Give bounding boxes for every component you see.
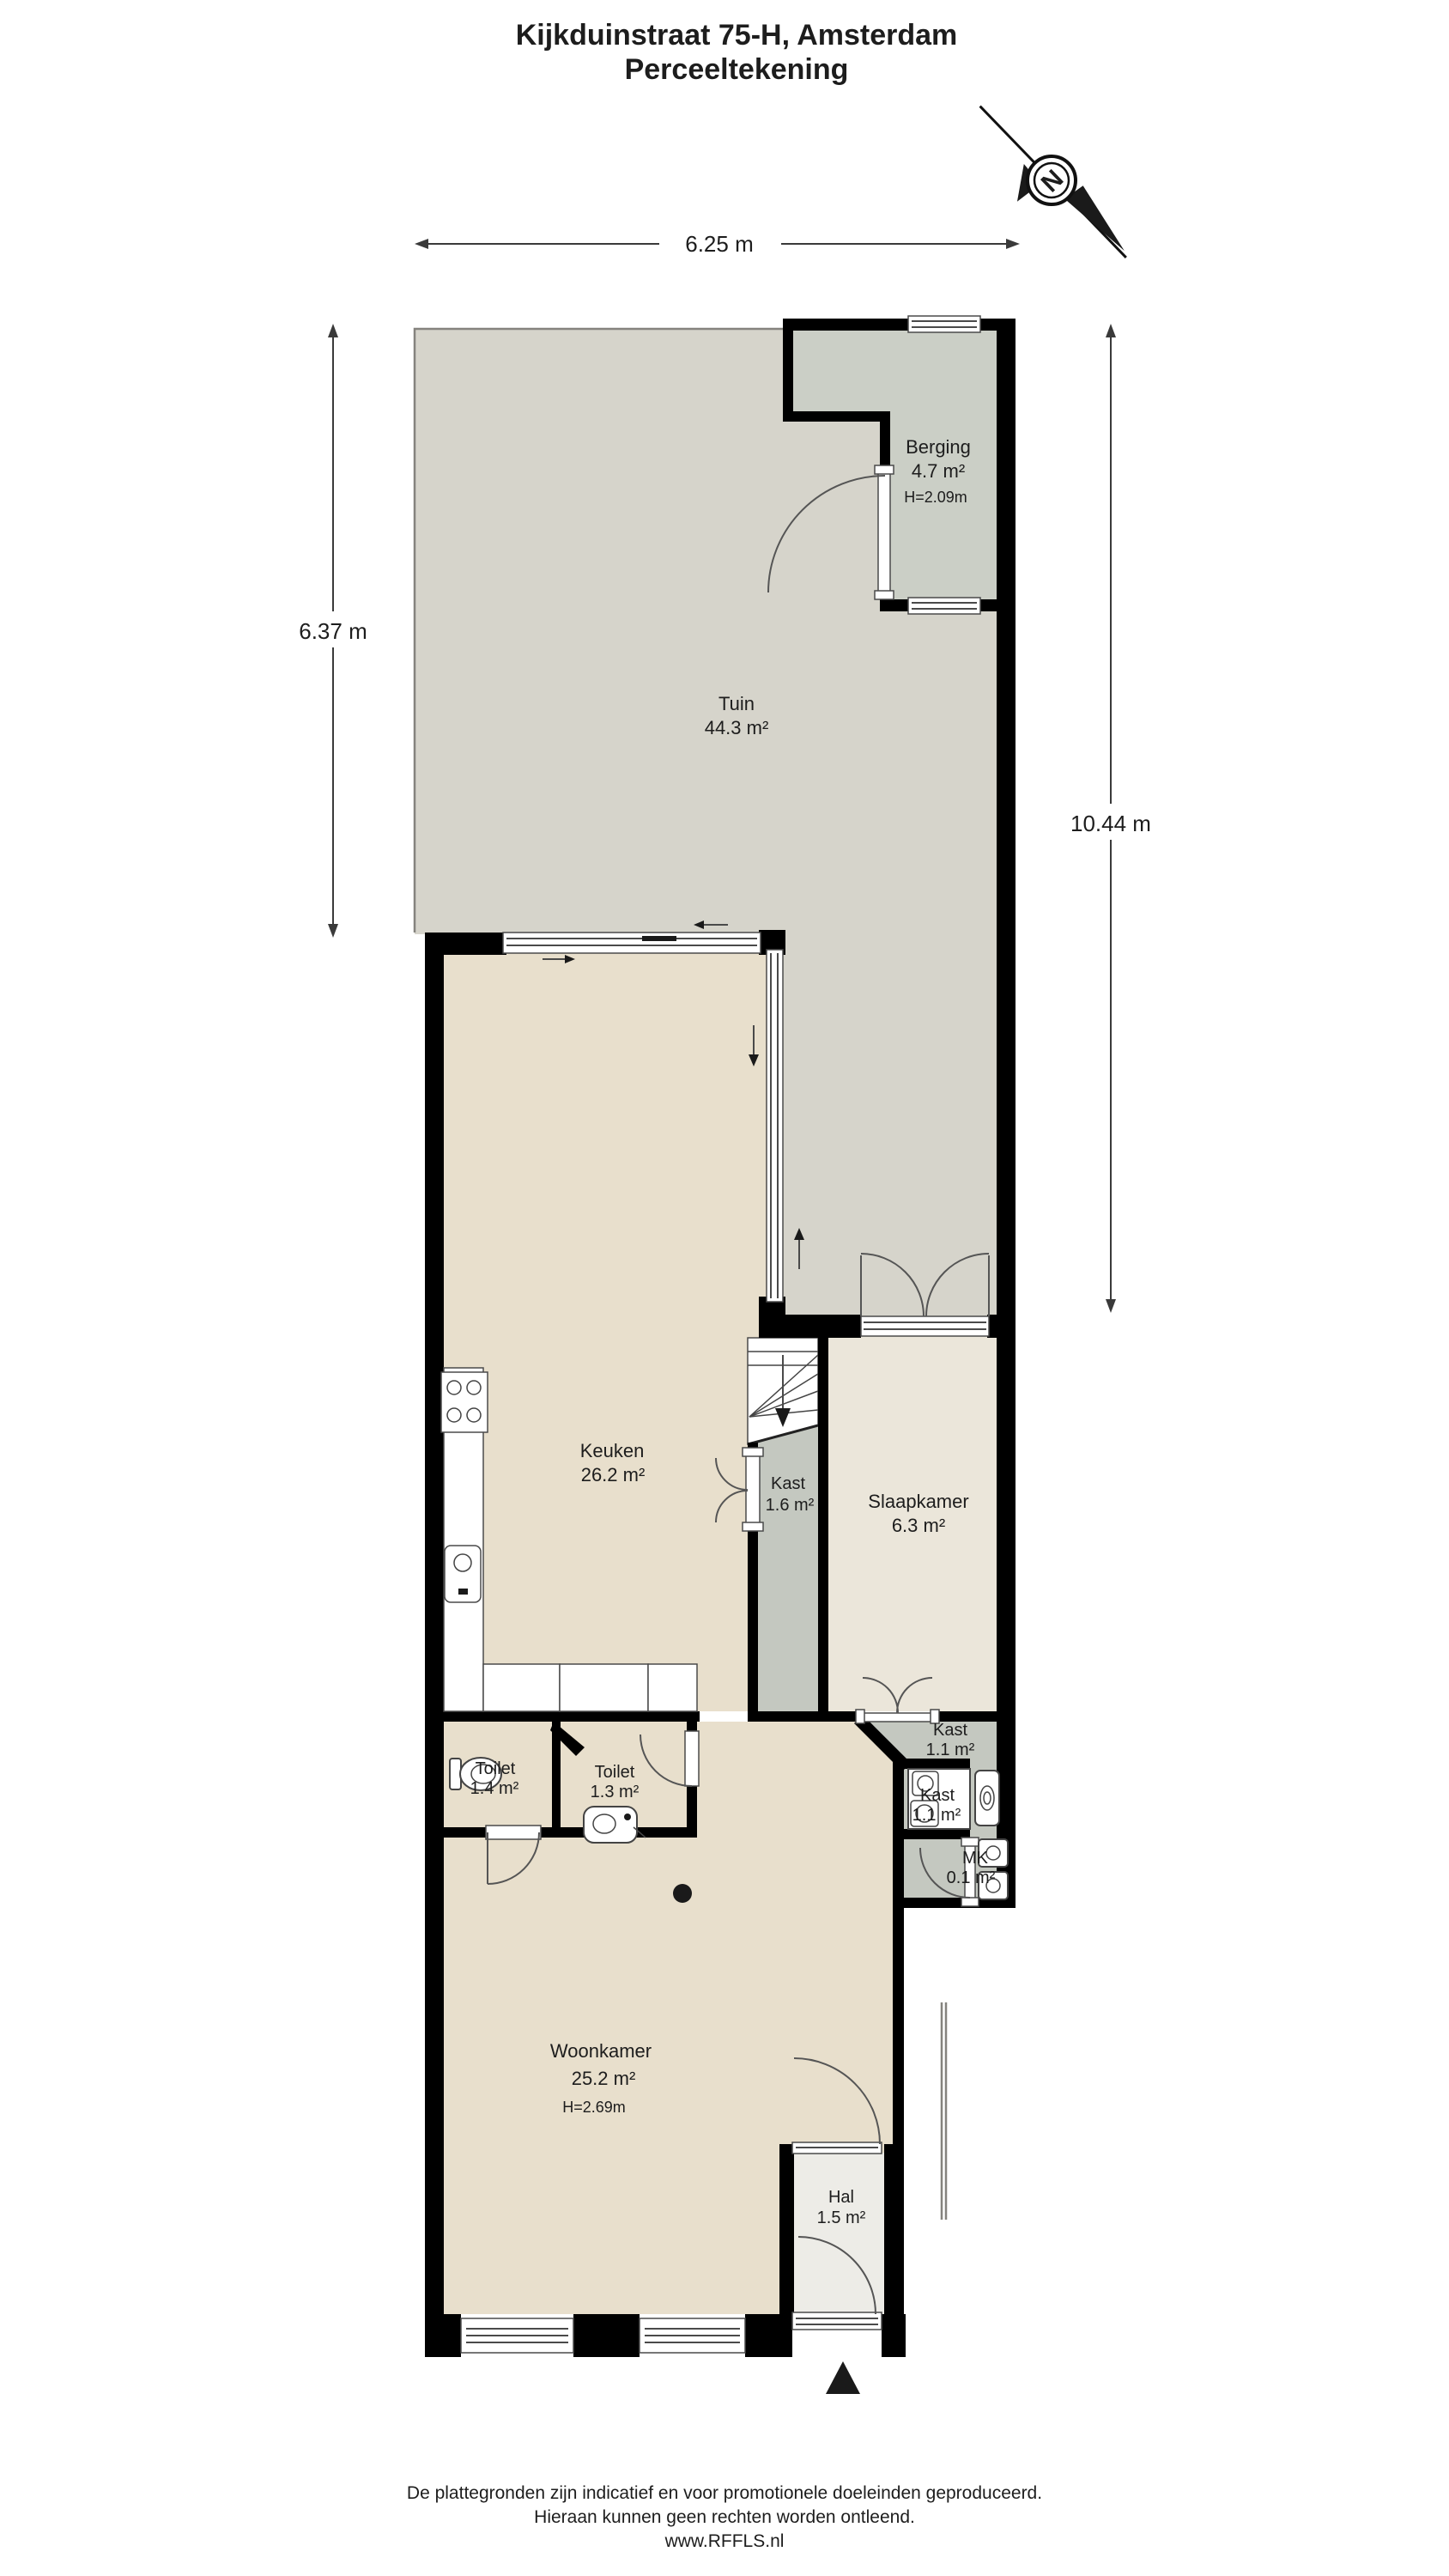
toilet-1-name-label: Toilet [476,1759,516,1778]
room-kast-trap-floor [758,1420,818,1711]
berging-name-label: Berging [906,436,971,458]
compass-north-icon: N [952,89,1143,285]
title-line-2: Perceeltekening [625,53,849,86]
room-toilet-2: Toilet 1.3 m² [591,1763,640,1801]
room-keuken-floor [444,951,768,1711]
boiler-icon [975,1771,999,1826]
staircase [748,1338,818,1444]
column-icon [673,1884,692,1903]
kast-trap-area-label: 1.6 m² [766,1496,815,1515]
footer-line-1: De plattegronden zijn indicatief en voor… [407,2483,1042,2503]
sink-icon [445,1546,481,1602]
kast-slaapkamer-area-label: 1.1 m² [926,1741,975,1759]
berging-ceiling-label: H=2.09m [904,489,967,506]
woonkamer-window-right-icon [640,2318,745,2353]
tuin-name-label: Tuin [718,693,755,714]
toilet-1-area-label: 1.4 m² [470,1779,519,1798]
berging-window-top-icon [908,316,980,332]
room-hal-floor [794,2153,884,2314]
meterkast-area-label: 0.1 m² [947,1868,996,1887]
dimension-top-label: 6.25 m [685,231,754,257]
floorplan-svg: Kijkduinstraat 75-H, Amsterdam Perceelte… [0,0,1449,2576]
keuken-name-label: Keuken [580,1440,645,1461]
footer-disclaimer: De plattegronden zijn indicatief en voor… [407,2483,1042,2551]
hal-name-label: Hal [828,2188,854,2207]
kast-trap-name-label: Kast [771,1474,805,1493]
footer-line-3: www.RFFLS.nl [664,2531,785,2551]
kast-wasruimte-name-label: Kast [920,1786,955,1805]
dimension-left: 6.37 m [273,324,393,938]
room-toilet-1: Toilet 1.4 m² [470,1759,519,1798]
dimension-left-label: 6.37 m [299,618,367,644]
woonkamer-ceiling-label: H=2.69m [562,2099,626,2116]
slaapkamer-name-label: Slaapkamer [868,1491,968,1512]
dimension-right-label: 10.44 m [1070,811,1151,836]
berging-area-label: 4.7 m² [912,460,965,482]
woonkamer-name-label: Woonkamer [550,2040,652,2062]
slaapkamer-area-label: 6.3 m² [892,1515,945,1536]
stove-icon [441,1372,488,1432]
berging-window-bottom-icon [908,598,980,614]
woonkamer-area-label: 25.2 m² [572,2068,636,2089]
keuken-area-label: 26.2 m² [581,1464,646,1485]
dimension-top: 6.25 m [415,227,1020,259]
entrance-marker-icon [826,2361,860,2394]
page-title: Kijkduinstraat 75-H, Amsterdam Perceelte… [516,19,958,86]
kast-slaapkamer-name-label: Kast [933,1721,967,1740]
room-kast-wasruimte: Kast 1.1 m² [912,1786,961,1825]
footer-line-2: Hieraan kunnen geen rechten worden ontle… [534,2507,915,2527]
tuin-area-label: 44.3 m² [705,717,769,738]
toilet-2-fixture-icon [584,1807,646,1843]
floorplan-page: Kijkduinstraat 75-H, Amsterdam Perceelte… [0,0,1449,2576]
boundary-fence-line [942,2002,946,2220]
kast-wasruimte-area-label: 1.1 m² [912,1806,961,1825]
woonkamer-window-left-icon [461,2318,573,2353]
toilet-2-area-label: 1.3 m² [591,1783,640,1801]
hal-area-label: 1.5 m² [817,2208,866,2227]
dimension-right: 10.44 m [1044,324,1178,1313]
title-line-1: Kijkduinstraat 75-H, Amsterdam [516,19,958,52]
meterkast-name-label: MK [962,1849,989,1868]
toilet-2-name-label: Toilet [595,1763,635,1782]
